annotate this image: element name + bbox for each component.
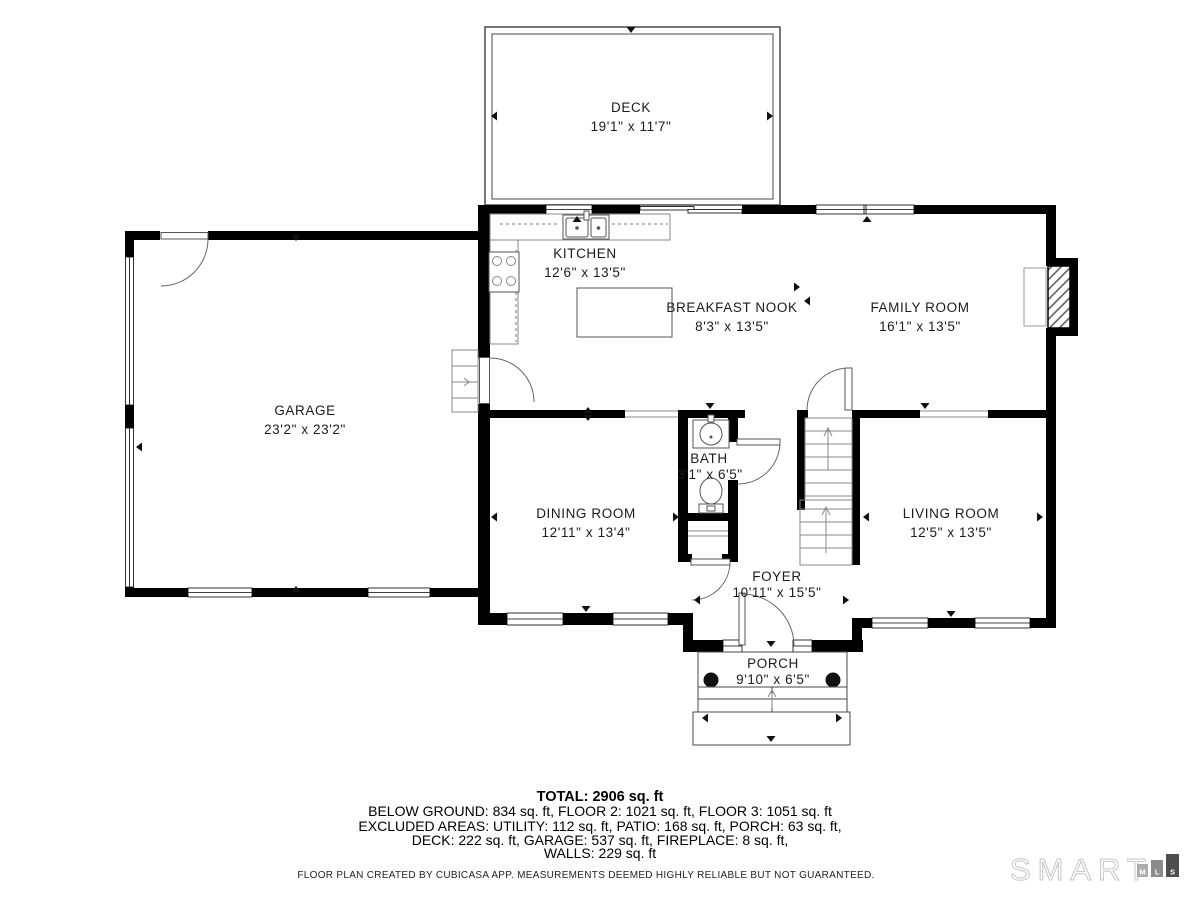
stairs (800, 418, 852, 565)
floor-plan: DECK 19'1" x 11'7" KITCHEN 12'6" x 13'5"… (0, 0, 1200, 900)
porch-dims: 9'10" x 6'5" (736, 672, 810, 687)
living-room-label: LIVING ROOM (903, 506, 1000, 521)
closet-shelves (688, 531, 728, 536)
porch-column (704, 673, 719, 688)
bath-sink-icon (693, 415, 729, 448)
deck-dims: 19'1" x 11'7" (591, 119, 672, 134)
family-room-dims: 16'1" x 13'5" (879, 319, 961, 334)
garage-steps (452, 350, 478, 412)
porch-column (826, 673, 841, 688)
excluded-area-3: WALLS: 229 sq. ft (544, 845, 656, 861)
floors-area: BELOW GROUND: 834 sq. ft, FLOOR 2: 1021 … (368, 803, 832, 819)
foyer-dims: 10'11" x 15'5" (733, 585, 822, 600)
breakfast-nook-label: BREAKFAST NOOK (666, 300, 797, 315)
fireplace-icon (1024, 266, 1070, 328)
logo-brand-text: SMART (1010, 852, 1153, 887)
foyer-label: FOYER (752, 569, 802, 584)
toilet-icon (699, 478, 723, 513)
garage-entry-door (161, 233, 208, 287)
closet-door (691, 559, 730, 600)
bath-label: BATH (690, 451, 727, 466)
family-room-label: FAMILY ROOM (870, 300, 969, 315)
kitchen-dims: 12'6" x 13'5" (544, 265, 626, 280)
kitchen-label: KITCHEN (553, 246, 616, 261)
dining-room-label: DINING ROOM (536, 506, 636, 521)
sink-icon (563, 211, 609, 239)
area-summary: TOTAL: 2906 sq. ft BELOW GROUND: 834 sq.… (358, 789, 841, 861)
svg-text:M: M (1139, 868, 1145, 877)
doors (161, 233, 852, 647)
room-labels: DECK 19'1" x 11'7" KITCHEN 12'6" x 13'5"… (264, 100, 999, 687)
svg-text:S: S (1170, 868, 1175, 877)
living-room-dims: 12'5" x 13'5" (910, 525, 992, 540)
deck-label: DECK (611, 100, 651, 115)
stair-door (807, 368, 852, 410)
dimension-ticks (136, 27, 1043, 742)
bath-door (737, 439, 780, 484)
floor-plan-svg: DECK 19'1" x 11'7" KITCHEN 12'6" x 13'5"… (0, 0, 1200, 900)
kitchen-island (577, 288, 672, 337)
sliding-door (640, 207, 742, 214)
smartmls-logo: SMART M L S (1010, 852, 1179, 887)
breakfast-nook-dims: 8'3" x 13'5" (695, 319, 769, 334)
garage-label: GARAGE (274, 403, 335, 418)
dining-room-dims: 12'11" x 13'4" (542, 525, 631, 540)
deck-outline (485, 27, 780, 205)
porch-label: PORCH (747, 656, 799, 671)
garage-kitchen-door (480, 358, 535, 404)
disclaimer-text: FLOOR PLAN CREATED BY CUBICASA APP. MEAS… (297, 870, 874, 881)
front-door (739, 593, 794, 646)
stove-icon (489, 252, 519, 292)
garage-dims: 23'2" x 23'2" (264, 422, 346, 437)
svg-text:L: L (1155, 868, 1160, 877)
bath-dims: 3'1" x 6'5" (677, 467, 743, 482)
